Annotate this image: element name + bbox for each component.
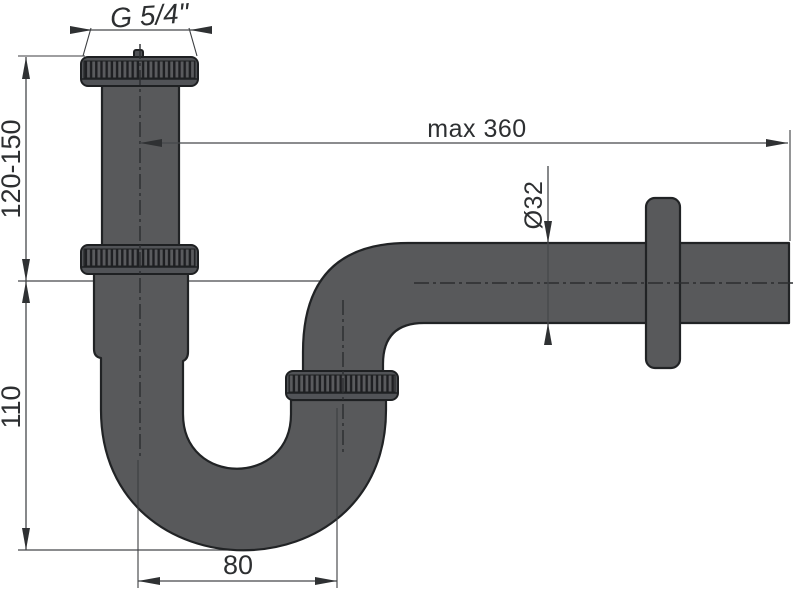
drawing-svg: G 5/4" 120-150 110 max 360 Ø32 80 <box>0 0 800 590</box>
dimension-inlet-height: 120-150 <box>0 56 85 281</box>
limb-spacing-label: 80 <box>223 550 253 580</box>
pipe-diameter-label: Ø32 <box>520 181 548 230</box>
dimension-thread: G 5/4" <box>70 0 212 56</box>
dimension-trap-depth: 110 <box>0 281 30 550</box>
thread-size-label: G 5/4" <box>109 0 190 34</box>
inlet-height-label: 120-150 <box>0 119 26 218</box>
dimension-max-reach: max 360 <box>140 115 790 241</box>
outlet-union-nut <box>286 371 398 400</box>
max-reach-label: max 360 <box>427 115 526 143</box>
elbow-outlet-pipe <box>303 243 789 373</box>
trap-depth-label: 110 <box>0 385 26 428</box>
siphon-technical-drawing: G 5/4" 120-150 110 max 360 Ø32 80 <box>0 0 800 590</box>
